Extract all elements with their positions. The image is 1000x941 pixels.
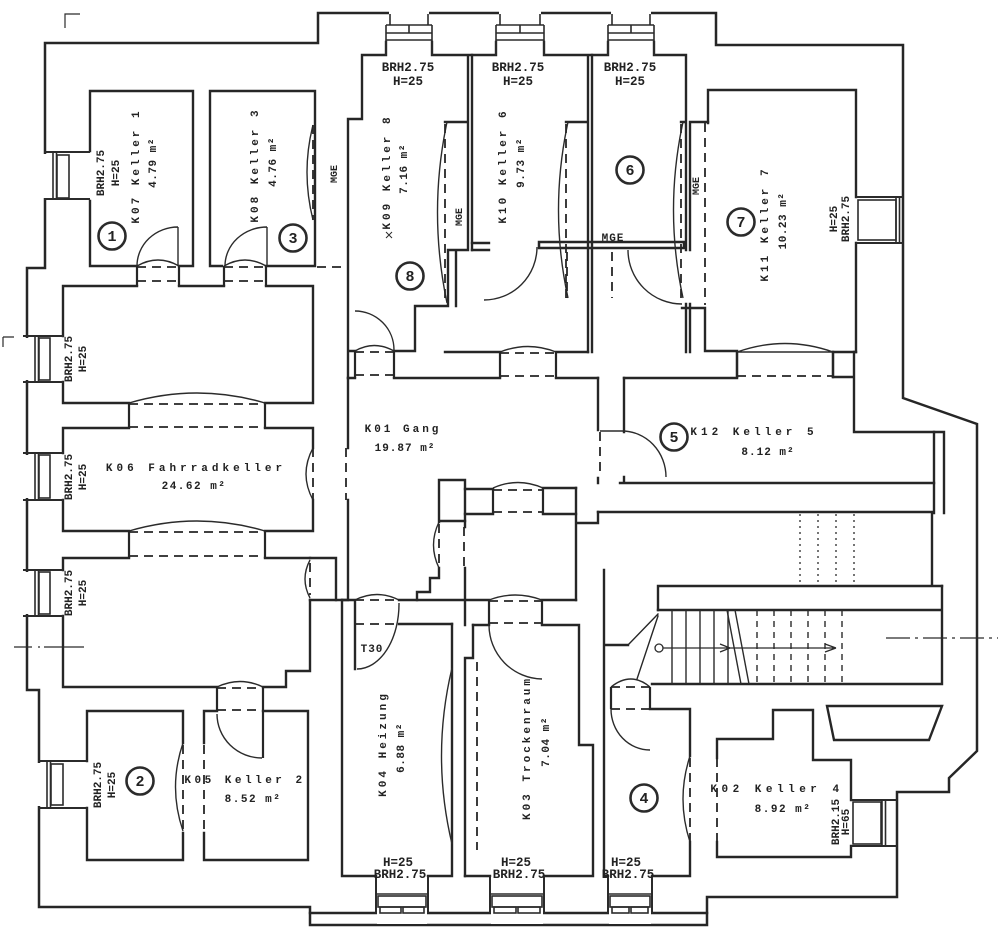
svg-text:H=25: H=25 [78,345,90,372]
svg-text:8: 8 [405,269,414,286]
svg-text:7: 7 [736,215,745,232]
svg-text:BRH2.75: BRH2.75 [382,61,435,75]
svg-text:H=25: H=25 [615,75,645,89]
svg-text:K11 Keller 7: K11 Keller 7 [760,166,772,281]
svg-text:BRH2.75: BRH2.75 [374,868,427,882]
svg-text:5: 5 [669,430,678,447]
svg-text:K12 Keller 5: K12 Keller 5 [690,427,817,439]
svg-text:MGE: MGE [455,208,466,226]
svg-text:K10 Keller 6: K10 Keller 6 [498,108,510,223]
svg-text:MGE: MGE [692,177,703,195]
svg-text:BRH2.75: BRH2.75 [604,61,657,75]
svg-text:8.92 m²: 8.92 m² [755,804,812,816]
svg-text:H=25: H=25 [503,75,533,89]
svg-text:K03 Trockenraum: K03 Trockenraum [522,676,534,820]
svg-text:K01 Gang: K01 Gang [365,424,442,436]
svg-text:K05 Keller 2: K05 Keller 2 [184,775,305,787]
svg-text:24.62 m²: 24.62 m² [162,481,227,493]
svg-text:8.12 m²: 8.12 m² [741,447,794,459]
svg-text:4: 4 [639,791,648,808]
svg-text:K02 Keller 4: K02 Keller 4 [710,784,843,796]
svg-text:BRH2.75: BRH2.75 [841,196,853,243]
svg-text:7.16 m²: 7.16 m² [399,144,411,194]
svg-text:BRH2.75: BRH2.75 [93,762,105,809]
svg-text:10.23 m²: 10.23 m² [778,193,790,250]
svg-text:9.73 m²: 9.73 m² [516,138,528,188]
svg-text:H=25: H=25 [78,463,90,490]
svg-text:H=25: H=25 [78,579,90,606]
svg-text:MGE: MGE [602,233,625,245]
svg-text:2: 2 [135,774,144,791]
svg-text:H=25: H=25 [111,159,123,186]
svg-text:BRH2.75: BRH2.75 [64,336,76,383]
svg-text:7.04 m²: 7.04 m² [541,717,553,767]
svg-text:K07 Keller 1: K07 Keller 1 [131,108,143,223]
svg-text:H=25: H=25 [107,771,119,798]
svg-text:BRH2.75: BRH2.75 [492,61,545,75]
svg-text:BRH2.75: BRH2.75 [493,868,546,882]
svg-text:BRH2.75: BRH2.75 [602,868,655,882]
svg-text:K08 Keller 3: K08 Keller 3 [250,107,262,222]
svg-text:H=25: H=25 [393,75,423,89]
svg-text:6.88 m²: 6.88 m² [396,723,408,773]
svg-text:4.76 m²: 4.76 m² [268,137,280,187]
svg-text:BRH2.75: BRH2.75 [64,454,76,501]
svg-text:BRH2.75: BRH2.75 [96,150,108,197]
svg-text:H=65: H=65 [841,808,853,835]
svg-text:K04 Heizung: K04 Heizung [378,691,390,797]
svg-text:H=25: H=25 [829,205,841,232]
svg-text:BRH2.75: BRH2.75 [64,570,76,617]
svg-text:8.52 m²: 8.52 m² [225,794,282,806]
svg-text:T30: T30 [361,644,384,656]
svg-text:1: 1 [107,229,116,246]
svg-text:MGE: MGE [330,165,341,183]
svg-text:K06 Fahrradkeller: K06 Fahrradkeller [106,463,286,475]
svg-text:19.87 m²: 19.87 m² [375,443,436,455]
svg-text:K09 Keller 8: K09 Keller 8 [382,114,394,229]
svg-text:6: 6 [625,163,634,180]
svg-text:4.79 m²: 4.79 m² [148,138,160,188]
svg-text:3: 3 [288,231,297,248]
